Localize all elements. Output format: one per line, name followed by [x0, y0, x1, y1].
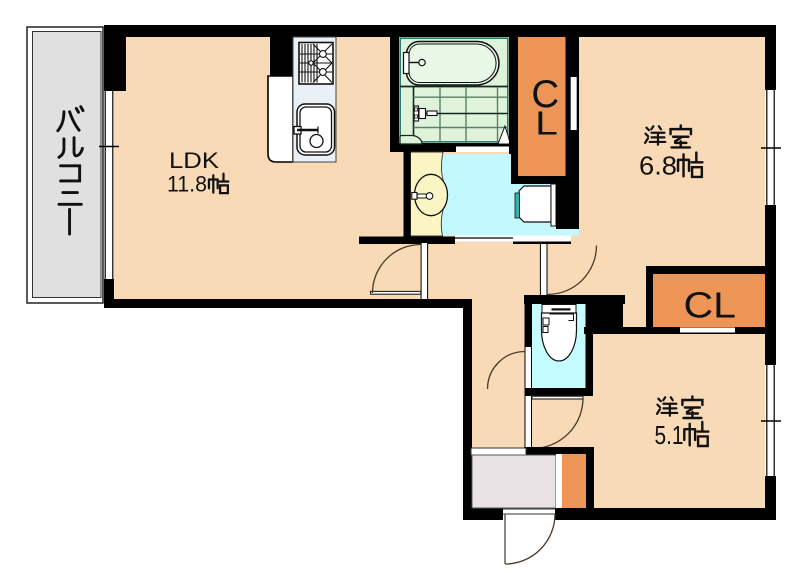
svg-text:5.1: 5.1	[655, 420, 684, 450]
svg-text:11.8: 11.8	[167, 171, 207, 196]
svg-text:6.8: 6.8	[639, 151, 677, 181]
svg-text:CL: CL	[684, 284, 737, 325]
svg-text:LDK: LDK	[169, 148, 219, 173]
svg-text:L: L	[535, 104, 558, 142]
